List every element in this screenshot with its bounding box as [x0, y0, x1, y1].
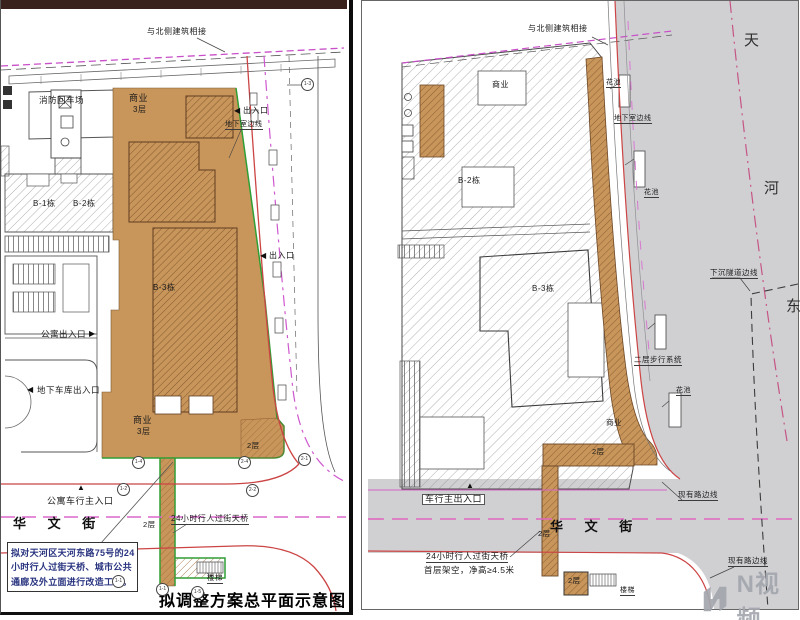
section-marker: 1-4 — [132, 456, 145, 469]
watermark-text: N视频 — [737, 564, 800, 620]
arrow-left-icon: ◀ — [234, 107, 240, 115]
apt-vehicle-entrance-label: 公寓车行主入口 — [47, 497, 114, 506]
b1-label: B-1栋 — [33, 200, 55, 208]
site-plan-page: 与北侧建筑相接 消防回车场 商业 3层 B-1栋 B-2栋 B-3栋 ◀ 出入口… — [0, 0, 800, 620]
section-marker: 2-2 — [246, 484, 259, 497]
current-plan-panel: 与北侧建筑相接 商业 花池 地下室边线 花池 下沉隧道边线 天 河 东 二层步行… — [361, 0, 799, 610]
watermark: N视频 — [702, 564, 800, 620]
section-marker: 1-5 — [191, 586, 204, 599]
arrow-up-icon: ▲ — [466, 482, 474, 490]
biz-bottom-floors: 3层 — [137, 428, 150, 436]
footbridge-label: 24小时行人过街天桥 — [171, 515, 249, 525]
flower-bed-label: 花池 — [676, 387, 691, 396]
section-marker: 1-2 — [117, 483, 130, 496]
street-name: 华 文 街 — [13, 517, 104, 531]
b2-label: B-2栋 — [73, 200, 95, 208]
nvideo-logo-icon — [702, 584, 732, 614]
north-link-label: 与北侧建筑相接 — [147, 28, 207, 36]
section-marker: 2-1 — [298, 453, 311, 466]
section-marker: 2-4 — [238, 456, 251, 469]
stairs-label: 楼梯 — [620, 587, 635, 596]
arrow-up-icon: ▲ — [77, 484, 85, 492]
b2-label: B-2栋 — [458, 177, 480, 185]
ped-system-label: 二层步行系统 — [634, 356, 682, 366]
arrow-left-icon: ◀ — [260, 252, 266, 260]
garage-entrance-label: 地下车库出入口 — [37, 386, 100, 395]
floor2-bridge-label: 2层 — [538, 530, 551, 538]
existing-road-edge-label: 现有路边线 — [678, 491, 718, 501]
section-marker: 1-1 — [156, 583, 169, 596]
arrow-right-icon: ▶ — [89, 330, 95, 338]
floor2-se-label: 2层 — [247, 442, 260, 450]
street-name: 华 文 街 — [550, 520, 641, 534]
stair-block — [197, 562, 223, 573]
flower-bed-label: 花池 — [606, 79, 621, 88]
west-buildings — [5, 174, 113, 452]
section-marker: 1-3 — [301, 78, 314, 91]
fire-yard-label: 消防回车场 — [39, 96, 84, 105]
north-link-label: 与北侧建筑相接 — [528, 25, 588, 33]
exit-mid-label: 出入口 — [269, 252, 295, 260]
basement-edge-label: 地下室边线 — [225, 121, 263, 130]
basement-edge-label: 地下室边线 — [614, 115, 652, 124]
footbridge-label-line2: 首层架空，净高≥4.5米 — [424, 566, 514, 575]
road-name-char: 东 — [786, 295, 800, 316]
exit-top-label: 出入口 — [243, 107, 269, 115]
plan-caption: 拟调整方案总平面示意图 — [159, 587, 346, 611]
biz-top-label: 商业 — [129, 94, 148, 103]
biz-top-label: 商业 — [492, 81, 509, 89]
note-line: 小时行人过街天桥、城市公共 — [11, 560, 135, 574]
section-marker: 1-1 — [112, 575, 125, 588]
road-name-char: 河 — [764, 177, 779, 198]
flower-bed-label: 花池 — [644, 189, 659, 198]
note-line: 拟对天河区天河东路75号的24 — [11, 546, 135, 560]
proposed-plan-panel: 与北侧建筑相接 消防回车场 商业 3层 B-1栋 B-2栋 B-3栋 ◀ 出入口… — [0, 0, 353, 615]
top-dark-bar — [1, 0, 347, 9]
biz-top-floors: 3层 — [133, 106, 146, 114]
arrow-left-icon: ◀ — [27, 386, 33, 394]
apartment-entrance-label: 公寓出入口 — [41, 330, 86, 339]
floor2-bar-label: 2层 — [592, 448, 605, 456]
tunnel-edge-label: 下沉隧道边线 — [710, 269, 758, 279]
stairs-label: 楼梯 — [207, 574, 223, 584]
biz-label: 商业 — [606, 419, 622, 427]
road-name-char: 天 — [744, 29, 759, 50]
current-plan-drawing — [362, 1, 798, 609]
floor2-bridge-label: 2层 — [143, 521, 156, 529]
footbridge-label-line1: 24小时行人过街天桥 — [426, 552, 508, 563]
b3-label: B-3栋 — [153, 284, 175, 292]
b3-label: B-3栋 — [532, 285, 554, 293]
stair-block — [590, 574, 616, 586]
vehicle-entrance-label: 车行主出入口 — [422, 494, 485, 505]
biz-bottom-label: 商业 — [133, 416, 152, 425]
floor2-box-label: 2层 — [568, 577, 581, 585]
